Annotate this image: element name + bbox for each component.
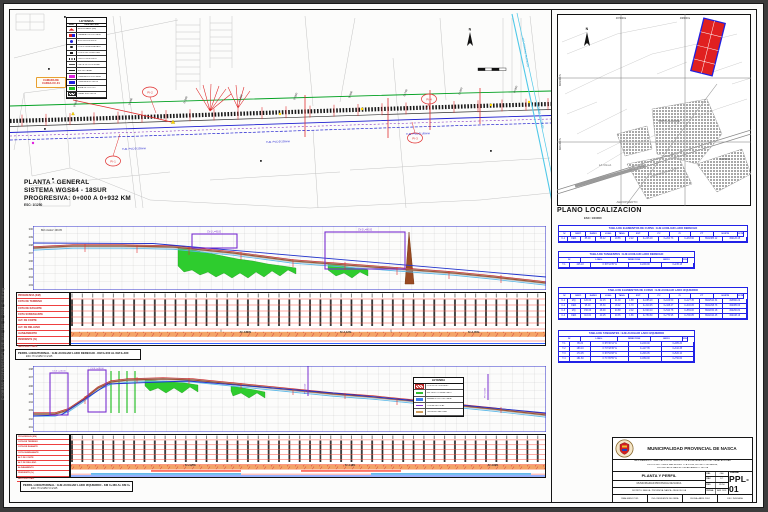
elevation-label: 300 (21, 226, 33, 234)
band-lower (70, 434, 546, 478)
north-arrow-icon: N (467, 28, 473, 47)
pi-label: PI-4 (426, 97, 432, 101)
elevation-label: 296 (21, 383, 33, 391)
footer-cell: REALIZADO POR: (613, 495, 648, 502)
legend-col-desc: DESCRIPCION (77, 24, 106, 26)
locmap-scale: ESC: 1/10000 (584, 216, 602, 220)
pi-label: PI-2 (147, 90, 153, 94)
legend-label: CORTE DE TERRENO (426, 385, 463, 387)
legend-symbol-icon (69, 58, 75, 59)
svg-text:0+600: 0+600 (347, 90, 353, 99)
survey-point (32, 142, 34, 144)
legend-row: TERRENO NATURAL (414, 409, 463, 415)
grade-label: S=-1.62% (488, 465, 498, 467)
piv-label: PIV 0+835 (485, 387, 487, 398)
pi-label: PI-3 (412, 136, 418, 140)
legend-symbol-icon (69, 75, 75, 77)
elevation-axis-lower: 298297296295294293292291 (21, 366, 33, 432)
title-block-footer: REALIZADO POR:ING. RESIDENTE DE OBRAFECH… (613, 495, 752, 502)
legend-symbol-icon (70, 40, 73, 43)
curve-table-right: TABLA DE ELEMENTOS DE CURVA : EJE AUXILI… (558, 225, 748, 243)
title-block-header: MUNICIPALIDAD PROVINCIAL DE NASCA (613, 438, 752, 460)
elevation-label: 294 (21, 399, 33, 407)
scale-bar (478, 68, 506, 71)
municipality-logo-icon (613, 439, 635, 458)
svg-text:0+700: 0+700 (402, 88, 408, 97)
plan-legend: LEYENDA SIMB. DESCRIPCION BENCH MARK (BM… (66, 17, 107, 99)
elevation-label: 293 (21, 407, 33, 415)
elevation-label: 294 (21, 274, 33, 282)
grade-label: S=+4.25% (185, 465, 196, 467)
svg-text:0+800: 0+800 (457, 86, 463, 95)
legend-rows: BENCH MARK (BM) CAMARA PROYECTADA BUZON … (67, 27, 106, 98)
grade-label: S=-1.12% (340, 331, 351, 334)
elevation-label: 297 (21, 250, 33, 258)
plan-title-line: SISTEMA WGS84 - 18SUR (24, 187, 131, 195)
band-lower-grid (71, 435, 545, 477)
grade-label: S=-1.18% (345, 465, 355, 467)
svg-text:0+500: 0+500 (292, 92, 298, 101)
legend-symbol-icon (69, 87, 75, 89)
legend-symbol-icon (416, 392, 423, 395)
locmap-title: PLANO LOCALIZACION (557, 207, 642, 214)
drawing-sheet: D:\OBRAS 2024\NASCA\PL_EJE-AUX_18S_TI_20… (0, 0, 768, 512)
legend-symbol-icon (69, 70, 75, 71)
entity-name: MUNICIPALIDAD PROVINCIAL DE NASCA (613, 481, 705, 488)
table-body: T-1245.18N 68°12'35" E0+000.000+245.18 (559, 263, 694, 268)
legend-label: AREA DE CULTIVO (77, 87, 106, 89)
chamber-callout: CAMARA DE CARGA CC-01 (36, 77, 66, 88)
sheet-title: PLANTA Y PERFIL (613, 472, 705, 481)
svg-text:8942000 N: 8942000 N (559, 74, 562, 86)
caption-scale: ESC: H=1/1250 V=1/125 (23, 487, 130, 490)
band-labels-lower: PROGRESIVA (KM)COTA DE TERRENOCOTA DE RA… (16, 434, 70, 478)
legend-symbol-icon (70, 52, 73, 55)
plan-title-line: PLANTA - GENERAL (24, 179, 131, 187)
table-body: C-1DER.85.0038.4219.552.220+245.180+264.… (559, 237, 747, 242)
elevation-label: 291 (21, 424, 33, 432)
elevation-label: 298 (21, 366, 33, 374)
legend-symbol-icon (416, 405, 423, 406)
project-description: MEJORAMIENTO Y AMPLIACION DEL SERVICIO D… (613, 460, 752, 472)
bm-label: BM-1 ELEV. 299.85 (41, 229, 63, 232)
legend-label: BUZON EXISTENTE (77, 40, 106, 42)
svg-text:TUB. PVC Ø 200mm: TUB. PVC Ø 200mm (122, 146, 146, 151)
organization-name: MUNICIPALIDAD PROVINCIAL DE NASCA (635, 446, 752, 451)
svg-text:TUB. PVC Ø 160mm: TUB. PVC Ø 160mm (406, 131, 430, 136)
grade-label: S=-0.85% (240, 331, 251, 334)
tangent-table-right: TABLA DE TANGENTES : EJE AUXILIAR LADO D… (558, 251, 695, 269)
legend-label: CANAL EXISTENTE (77, 93, 106, 95)
legend-label: TUBERIA PROYECTADA (77, 76, 106, 78)
svg-text:0+400: 0+400 (237, 93, 243, 102)
legend-label: CAMARA PROYECTADA (77, 34, 106, 36)
legend-symbol-icon (69, 81, 75, 83)
legend-label: POSTE DE TELEFONIA (77, 52, 106, 54)
legend-symbol-icon (68, 92, 76, 96)
pi-label: PI-1 (110, 159, 116, 163)
band-labels-upper: PROGRESIVA (KM)COTA DE TERRENOCOTA DE RA… (16, 292, 70, 346)
elevation-label: 296 (21, 258, 33, 266)
project-line: PROVINCIA DE NASCA - DEPARTAMENTO DE ICA (613, 467, 752, 470)
cv-label: CV-1 L=45.00 (207, 232, 222, 234)
elevation-label: 293 (21, 282, 33, 290)
station-labels: 0+100 0+200 0+300 0+400 0+500 0+600 0+70… (72, 85, 518, 108)
plan-title-line: PROGRESIVA: 0+000 A 0+932 KM (24, 195, 131, 203)
legend-symbol-icon (415, 384, 424, 389)
cv-label: CV-2 L=80.00 (358, 230, 373, 232)
panel-divider (551, 9, 552, 503)
elevation-label: 298 (21, 242, 33, 250)
band-upper-grid (71, 293, 545, 345)
table-row: C-4DER.110.0040.2520.351.860+750.600+770… (559, 314, 747, 319)
elevation-label: 297 (21, 374, 33, 382)
svg-text:NASCA: NASCA (720, 157, 732, 161)
elevation-label: 299 (21, 234, 33, 242)
elevation-label: 295 (21, 266, 33, 274)
legend-rows: CORTE DE TERRENO RELLENO COMPACTADO RASA… (414, 384, 463, 416)
legend-symbol-icon (416, 398, 423, 401)
svg-text:TUB. PVC Ø 200mm: TUB. PVC Ø 200mm (266, 139, 290, 144)
table-row: C-1DER.85.0038.4219.552.220+245.180+264.… (559, 237, 747, 242)
legend-label: EJE DE CANAL (77, 70, 106, 72)
footer-cell: ING. RESIDENTE DE OBRA (648, 495, 683, 502)
legend-row: CANAL EXISTENTE (67, 92, 106, 98)
curve-table-left: TABLA DE ELEMENTOS DE CURVA : EJE AUXILI… (558, 287, 748, 320)
svg-text:VISTA ALEGRE: VISTA ALEGRE (658, 119, 680, 123)
plot-stamp: D:\OBRAS 2024\NASCA\PL_EJE-AUX_18S_TI_20… (1, 170, 5, 400)
drawing-meta: DIB:CADREV:R.T.ESC:1/1250FECHA:ABR. 2024 (706, 472, 729, 495)
legend-symbol-icon (69, 64, 75, 65)
svg-text:0+300: 0+300 (182, 95, 188, 104)
legend-symbol-icon (70, 46, 73, 49)
profile-lower-caption: PERFIL LONGITUDINAL : EJE AUXILIAR LADO … (20, 481, 133, 492)
cv-label: CV-4 L=30.00 (90, 368, 104, 370)
svg-text:497000 E: 497000 E (616, 17, 627, 20)
canal-label: CANAL AUXILIAR (536, 104, 545, 129)
sheet-number: PPL-01 (729, 474, 752, 494)
legend-label: CURVA VERTICAL (426, 405, 463, 407)
elevation-label: 295 (21, 391, 33, 399)
profile-legend: LEYENDA CORTE DE TERRENO RELLENO COMPACT… (413, 377, 464, 417)
legend-label: RASANTE PROYECTADA (426, 398, 463, 400)
table-row: T-1245.18N 68°12'35" E0+000.000+245.18 (559, 263, 694, 268)
sheet-number-cell: LAMINA: PPL-01 (729, 472, 752, 495)
location-map: N 497000 E 498000 E 8942000 N 8941000 N … (557, 14, 751, 206)
project-location: DISTRITO: NASCA - PROVINCIA: NASCA - REG… (613, 488, 705, 494)
legend-label: TERRENO NATURAL (426, 411, 463, 413)
table-row: T-4181.60N 71°05'55" E0+569.000+750.60 (559, 357, 694, 362)
cv-label: CV-3 L=30.00 (52, 371, 66, 373)
svg-text:8941000 N: 8941000 N (559, 138, 562, 150)
caption-scale: ESC: H=1/1250 V=1/125 (18, 355, 138, 358)
legend-symbol-icon (416, 411, 423, 414)
grade-label: S=-1.45% (468, 331, 479, 334)
legend-symbol-icon (69, 28, 75, 30)
legend-col-sym: SIMB. (67, 24, 77, 26)
elevation-axis-upper: 300299298297296295294293 (21, 226, 33, 290)
svg-text:0+200: 0+200 (127, 97, 133, 106)
table-body: C-1IZQ.120.0042.1521.301.880+085.200+106… (559, 299, 747, 319)
canal-lines (512, 13, 551, 212)
profile-upper: BM-1 ELEV. 299.85 CV-1 L=45.00 CV-2 L=80… (33, 226, 546, 290)
profile-upper-caption: PERFIL LONGITUDINAL : EJE AUXILIAR LADO … (15, 349, 141, 360)
svg-text:LA VILLA: LA VILLA (599, 163, 612, 167)
plan-scale: ESC: 1/1250 (24, 203, 131, 207)
legend-label: RELLENO COMPACTADO (426, 392, 463, 394)
legend-symbol-icon (69, 34, 75, 36)
legend-label: CERCO EXISTENTE (77, 58, 106, 60)
piv-label: PIV 0+610 (305, 383, 307, 394)
title-block: MUNICIPALIDAD PROVINCIAL DE NASCA MEJORA… (612, 437, 753, 503)
legend-label: BENCH MARK (BM) (77, 28, 106, 30)
table-body: T-185.20N 65°30'12" E0+000.000+085.20T-2… (559, 342, 694, 362)
tangent-table-left: TABLA DE TANGENTES : EJE AUXILIAR LADO I… (558, 330, 695, 363)
svg-text:N: N (469, 28, 472, 32)
utility-posts (44, 16, 492, 180)
meta-row: FECHA:ABR. 2024 (706, 489, 728, 494)
profile-lower: PIV 0+610 PIV 0+835 CV-3 L=30.00 CV-4 L=… (33, 366, 546, 432)
svg-text:AEROPUERTO: AEROPUERTO (617, 200, 639, 204)
pipe-labels: TUB. PVC Ø 200mm TUB. PVC Ø 200mm TUB. P… (122, 131, 430, 151)
elevation-label: 292 (21, 416, 33, 424)
plan-title: PLANTA - GENERALSISTEMA WGS84 - 18SURPRO… (24, 179, 131, 207)
footer-cell: ESC: INDICADA (718, 495, 752, 502)
legend-label: TUBERIA EXISTENTE (77, 81, 106, 83)
callout-line: CARGA CC-01 (37, 82, 65, 85)
footer-cell: FECHA: ABRIL 2024 (683, 495, 718, 502)
svg-text:498000 E: 498000 E (680, 17, 691, 20)
legend-label: LIMITE DE PROPIEDAD (77, 64, 106, 66)
band-upper (70, 292, 546, 346)
legend-label: POSTE DE ALUMBRADO (77, 46, 106, 48)
